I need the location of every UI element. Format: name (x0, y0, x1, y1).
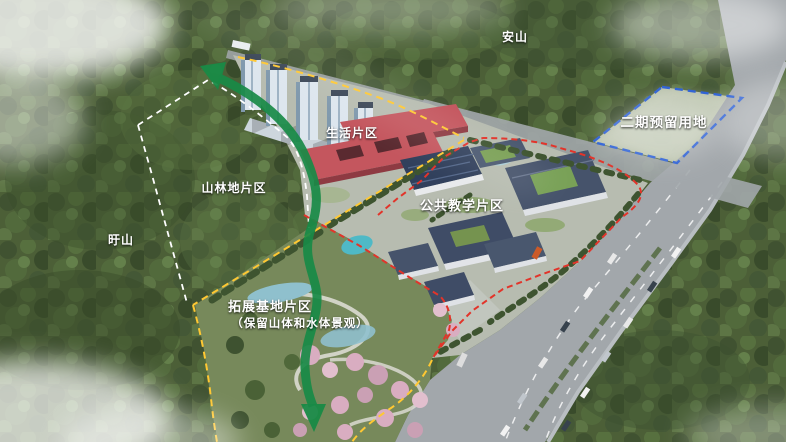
label-teaching-zone: 公共教学片区 (420, 198, 504, 213)
label-expansion-note: （保留山体和水体景观） (231, 316, 369, 330)
label-living-zone: 生活片区 (326, 125, 378, 140)
label-forest-zone: 山林地片区 (201, 180, 266, 195)
aerial-plan-canvas: 安山 二期预留用地 生活片区 山林地片区 旴山 公共教学片区 拓展基地片区 （保… (0, 0, 786, 442)
label-reserved-land: 二期预留用地 (621, 114, 708, 130)
label-anshan-mountain: 安山 (502, 29, 528, 44)
label-xushan-mountain: 旴山 (108, 232, 134, 247)
campus-masterplan-rendering: 安山 二期预留用地 生活片区 山林地片区 旴山 公共教学片区 拓展基地片区 （保… (0, 0, 786, 442)
label-expansion-zone: 拓展基地片区 (228, 299, 312, 314)
